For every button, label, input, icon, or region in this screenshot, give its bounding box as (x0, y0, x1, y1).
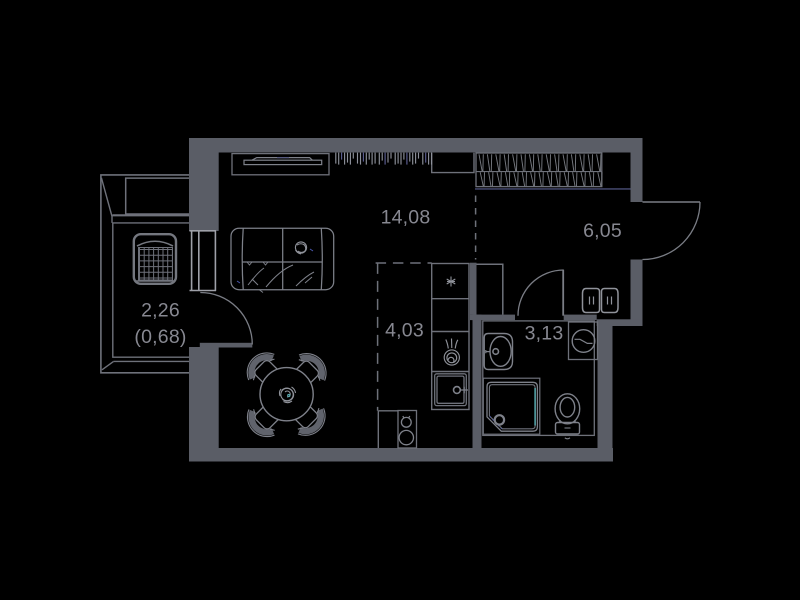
svg-text:14,08: 14,08 (381, 207, 431, 229)
svg-text:6,05: 6,05 (583, 220, 622, 242)
svg-text:4,03: 4,03 (385, 320, 424, 342)
svg-text:3,13: 3,13 (525, 323, 564, 345)
svg-text:2,26: 2,26 (141, 300, 180, 322)
svg-text:(0,68): (0,68) (134, 326, 186, 348)
